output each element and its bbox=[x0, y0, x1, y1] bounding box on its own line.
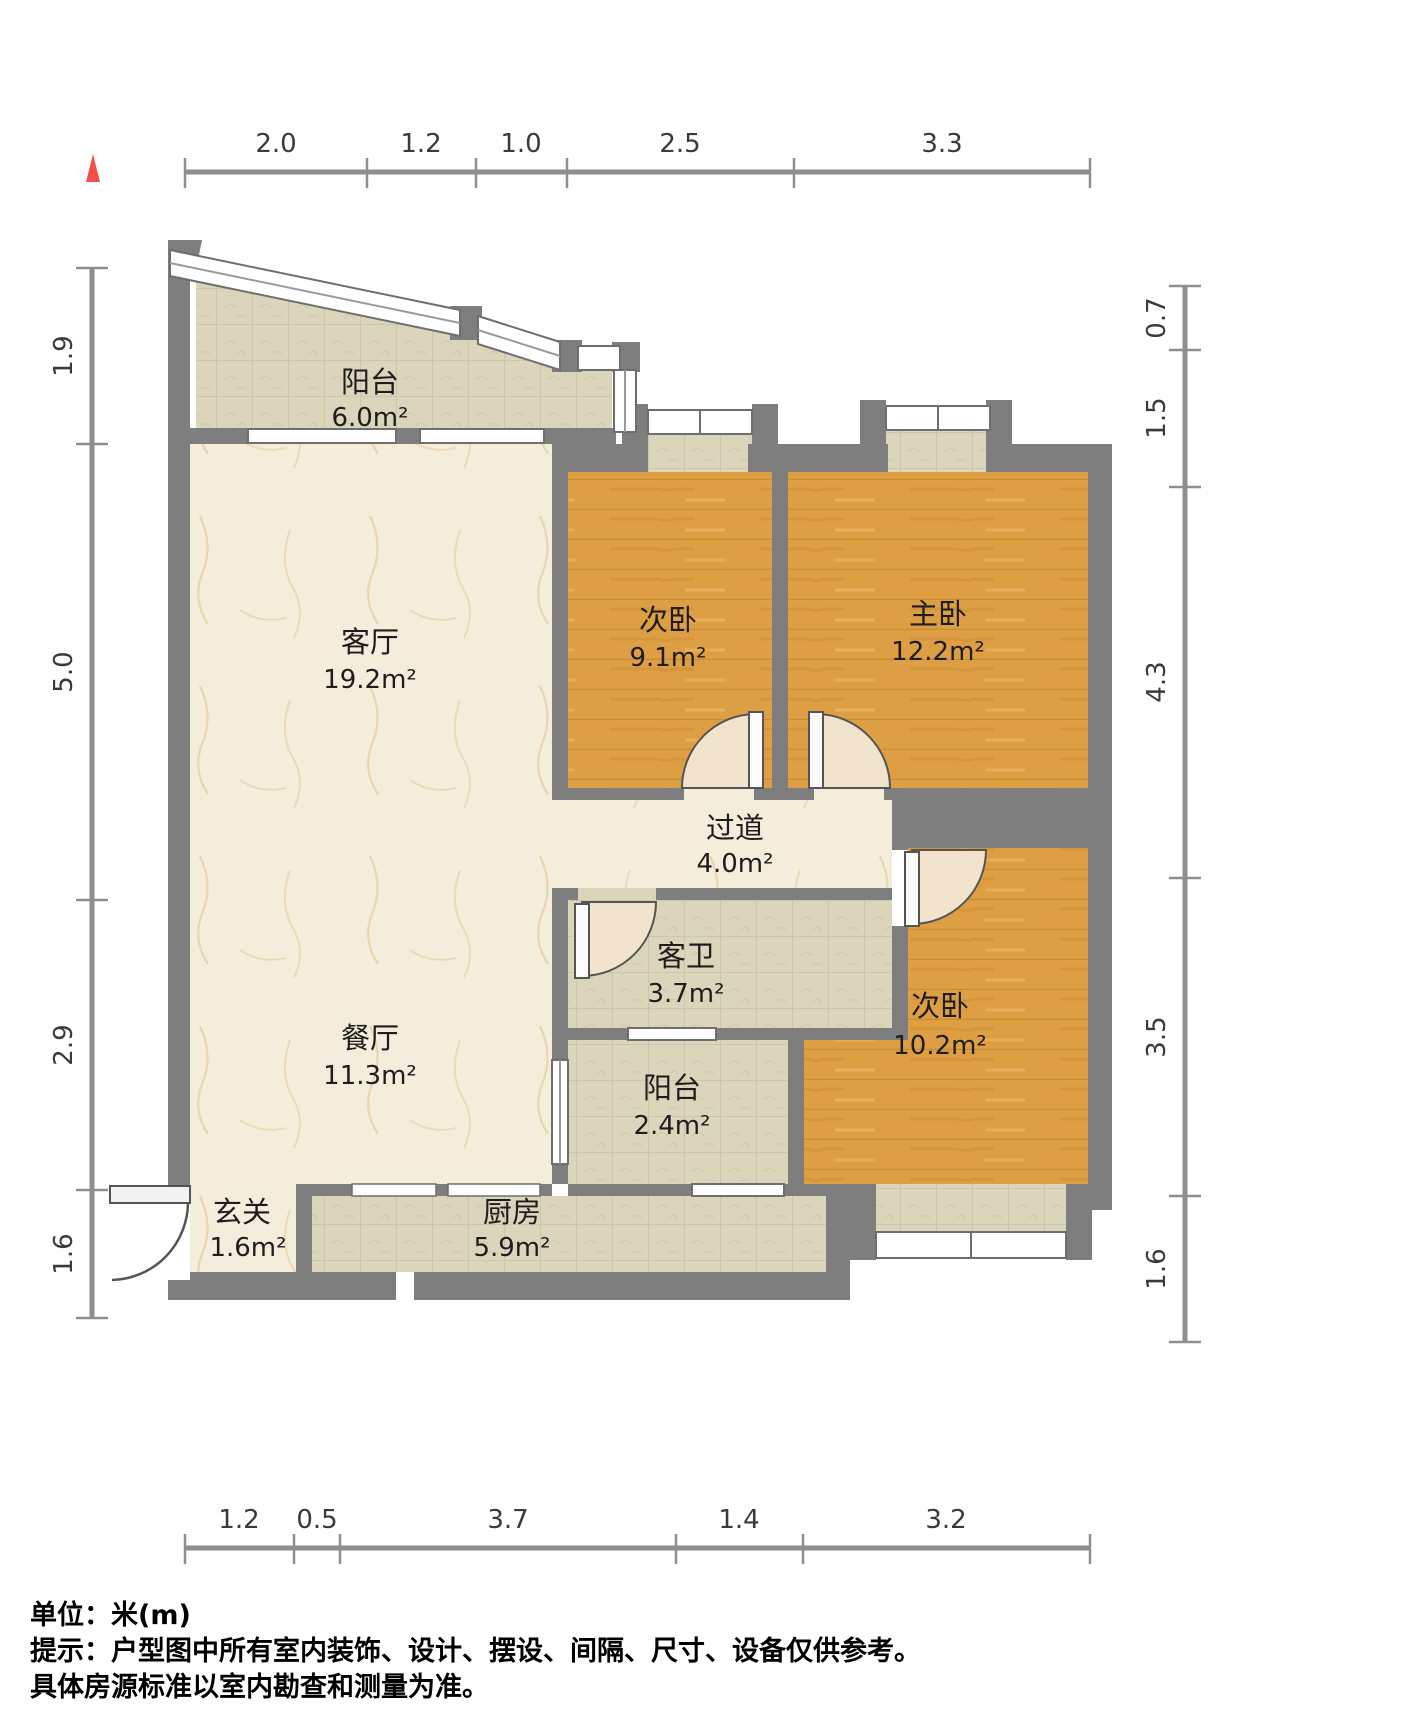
label-bedroom-2b: 次卧 bbox=[911, 989, 969, 1023]
floor-kitchen bbox=[312, 1196, 826, 1272]
dim-bottom-2: 3.7 bbox=[487, 1505, 528, 1535]
wall-stub-bed2b bbox=[804, 1184, 826, 1196]
bay-sill-bedroom-2a bbox=[648, 434, 752, 472]
area-bedroom-2b: 10.2m² bbox=[893, 1031, 987, 1061]
area-master: 12.2m² bbox=[891, 637, 985, 667]
dim-right-2: 4.3 bbox=[1142, 661, 1172, 702]
label-kitchen: 厨房 bbox=[483, 1195, 541, 1229]
area-kitchen: 5.9m² bbox=[473, 1233, 550, 1263]
wall-bath-balcony bbox=[552, 1028, 908, 1040]
opening-kitchen-1 bbox=[352, 1184, 436, 1196]
area-entry: 1.6m² bbox=[209, 1233, 286, 1263]
door-gap-bedroom-2a bbox=[684, 788, 754, 800]
dim-top-3: 2.5 bbox=[659, 129, 700, 159]
dim-left-0: 1.9 bbox=[49, 335, 79, 376]
notch-bottom-wall bbox=[396, 1272, 414, 1300]
wall-living-right-upper bbox=[552, 444, 568, 800]
wall-bottom bbox=[168, 1272, 850, 1300]
bayB-pillar-left bbox=[850, 1184, 876, 1260]
bay2a-pillar-right bbox=[752, 404, 778, 472]
dim-bottom-3: 1.4 bbox=[718, 1505, 759, 1535]
dim-right-1: 1.5 bbox=[1142, 397, 1172, 438]
door-gap-bathroom bbox=[578, 888, 656, 900]
door-leaf-bathroom bbox=[575, 904, 589, 978]
footer-unit-note: 单位：米(m) bbox=[30, 1598, 191, 1634]
door-leaf-bedroom-2b bbox=[905, 852, 919, 926]
door-gap-master bbox=[814, 788, 884, 800]
bayM-pillar-left bbox=[860, 400, 886, 472]
wall-right bbox=[1088, 444, 1112, 1210]
wall-bedroom-divider bbox=[772, 472, 788, 788]
window-bath-balcony-small bbox=[628, 1028, 716, 1040]
sliding-door-living-balcony-2 bbox=[420, 429, 544, 443]
footer-disclaimer-2: 具体房源标准以室内勘查和测量为准。 bbox=[30, 1670, 489, 1706]
dim-left-1: 5.0 bbox=[49, 651, 79, 692]
label-dining: 餐厅 bbox=[341, 1021, 399, 1055]
wall-entry-kitchen-divider bbox=[296, 1184, 312, 1272]
area-bedroom-2a: 9.1m² bbox=[629, 643, 706, 673]
floor-plan-svg: 阳台 6.0m² 客厅 19.2m² 次卧 9.1m² 主卧 12.2m² 过道… bbox=[0, 0, 1404, 1730]
label-bathroom: 客卫 bbox=[657, 939, 715, 973]
door-leaf-entry bbox=[110, 1186, 190, 1203]
bay-sill-master bbox=[886, 430, 990, 472]
dim-bottom-4: 3.2 bbox=[925, 1505, 966, 1535]
label-entry: 玄关 bbox=[213, 1195, 271, 1229]
area-balcony-small: 2.4m² bbox=[633, 1111, 710, 1141]
dim-top-2: 1.0 bbox=[500, 129, 541, 159]
label-balcony-top: 阳台 bbox=[341, 365, 399, 399]
footer-disclaimer-1: 提示：户型图中所有室内装饰、设计、摆设、间隔、尺寸、设备仅供参考。 bbox=[30, 1634, 921, 1670]
wall-balcony-small-right bbox=[788, 1028, 804, 1196]
dim-top-4: 3.3 bbox=[921, 129, 962, 159]
dim-right-0: 0.7 bbox=[1142, 297, 1172, 338]
wall-bed2a-top-left bbox=[552, 444, 624, 472]
area-dining: 11.3m² bbox=[323, 1061, 417, 1091]
door-leaf-bedroom-2a bbox=[749, 712, 763, 788]
label-hallway: 过道 bbox=[706, 811, 764, 845]
wall-left bbox=[168, 248, 190, 1198]
label-balcony-small: 阳台 bbox=[643, 1071, 701, 1105]
area-hallway: 4.0m² bbox=[696, 849, 773, 879]
wall-kitchen-right bbox=[826, 1184, 850, 1300]
dim-left-3: 1.6 bbox=[49, 1233, 79, 1274]
label-bedroom-2a: 次卧 bbox=[639, 603, 697, 637]
bay-sill-bedroom-2b bbox=[876, 1184, 1066, 1232]
dim-right-3: 3.5 bbox=[1142, 1016, 1172, 1057]
dim-left-2: 2.9 bbox=[49, 1024, 79, 1065]
door-leaf-master bbox=[809, 712, 823, 788]
area-balcony-top: 6.0m² bbox=[331, 403, 408, 433]
floor-plan-image: 阳台 6.0m² 客厅 19.2m² 次卧 9.1m² 主卧 12.2m² 过道… bbox=[0, 0, 1404, 1730]
dim-top-0: 2.0 bbox=[255, 129, 296, 159]
north-arrow-icon bbox=[86, 154, 100, 182]
dim-bottom-1: 0.5 bbox=[296, 1505, 337, 1535]
bayB-pillar-right bbox=[1066, 1184, 1092, 1260]
dim-bottom-0: 1.2 bbox=[218, 1505, 259, 1535]
label-living: 客厅 bbox=[341, 625, 399, 659]
label-master: 主卧 bbox=[909, 597, 967, 631]
window-balcony-small-bottom bbox=[692, 1184, 784, 1196]
dim-top-1: 1.2 bbox=[400, 129, 441, 159]
wall-master-bed2b-band bbox=[900, 800, 1088, 848]
window-balcony-top-right bbox=[578, 346, 620, 370]
area-bathroom: 3.7m² bbox=[647, 979, 724, 1009]
area-living: 19.2m² bbox=[323, 665, 417, 695]
dim-right-4: 1.6 bbox=[1142, 1248, 1172, 1289]
